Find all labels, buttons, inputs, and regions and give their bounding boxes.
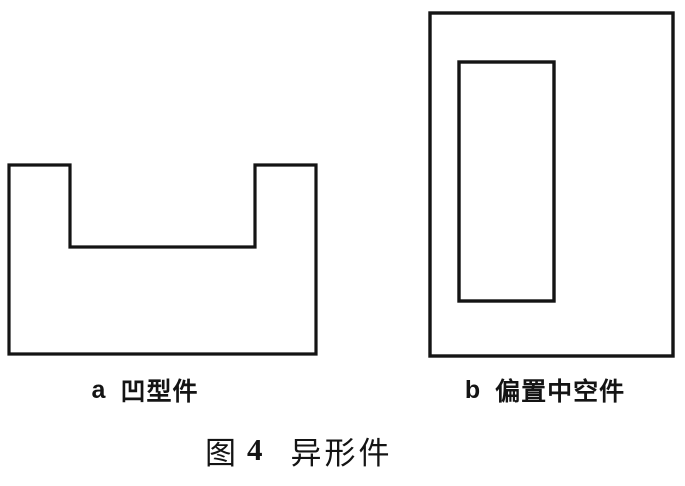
panel-b-letter: b (465, 376, 481, 405)
offset-hollow-part-drawing (427, 10, 678, 359)
concave-part-drawing (6, 162, 320, 358)
u-shape-outline (9, 165, 316, 354)
panel-a-letter: a (92, 376, 107, 405)
figure-4-irregular-parts: a 凹型件 b 偏置中空件 图 4 异形件 (0, 0, 685, 486)
panel-b-label: b 偏置中空件 (440, 373, 650, 407)
caption-figure-word: 图 (205, 428, 236, 473)
inner-rectangle (459, 62, 554, 301)
caption-figure-number: 4 (247, 432, 263, 468)
panel-a-name: 凹型件 (120, 372, 198, 408)
figure-caption: 图 4 异形件 (205, 429, 445, 471)
panel-b-name: 偏置中空件 (495, 372, 625, 408)
panel-a-label: a 凹型件 (60, 373, 230, 407)
caption-figure-title: 异形件 (291, 428, 393, 473)
